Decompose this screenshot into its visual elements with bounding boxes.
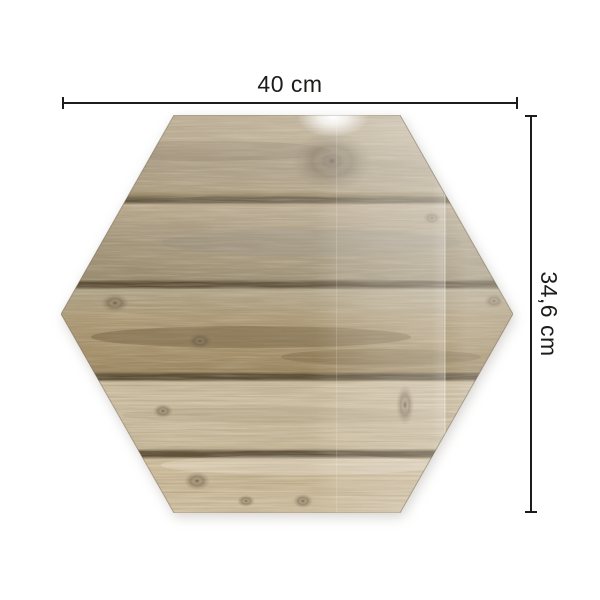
- wood-texture: [61, 115, 513, 513]
- hexagon-wood-panel: [61, 115, 513, 513]
- width-dimension-label: 40 cm: [62, 72, 518, 96]
- height-dimension-label: 34,6 cm: [537, 271, 561, 356]
- width-dimension-right-tick: [516, 97, 518, 109]
- product-image: 40 cm 34,6 cm: [0, 0, 600, 600]
- gloss-reflection-diagonal: [61, 115, 513, 513]
- height-dimension-bottom-tick: [525, 511, 537, 513]
- width-dimension-line: [62, 102, 518, 104]
- width-dimension-left-tick: [62, 97, 64, 109]
- height-dimension-top-tick: [525, 115, 537, 117]
- height-dimension-line: [530, 115, 532, 513]
